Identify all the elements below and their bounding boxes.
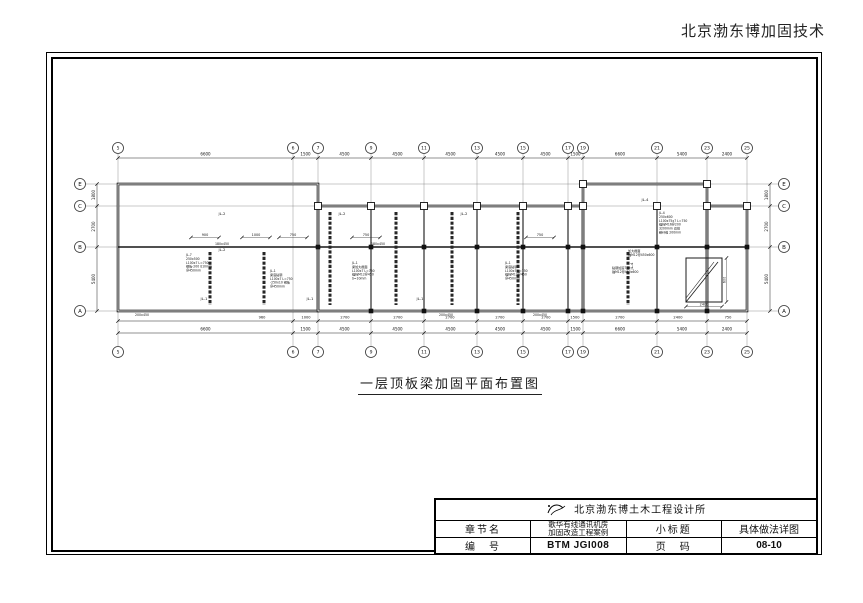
inner-dim-value: 1000 [252,233,261,237]
axis-bubble-top-label: 15 [520,146,526,152]
column-filled [745,245,750,250]
page-label: 页 码 [626,537,722,554]
dim-value-top: 4500 [392,152,403,157]
dim-value-bottom: 4500 [540,327,551,332]
column-hollow [474,203,481,210]
reinforcement-note: 加大截面锚M12@450x600 [628,248,654,257]
dim-value-room: 960 [259,316,267,320]
axis-bubble-left-label: E [78,182,82,188]
dim-value-top: 1500 [570,152,581,157]
axis-bubble-top-label: 13 [474,146,480,152]
column-hollow [580,181,587,188]
drawing-caption-text: 一层顶板梁加固平面布置图 [358,377,542,395]
institute-name: 北京渤东博土木工程设计所 [574,505,706,516]
beam-label: JL-2 [218,211,227,216]
reinforcement-note: JL-1梁底粘钢L100x7 L=750锚栓M12@450@450mm [504,261,528,281]
axis-bubble-top-label: 23 [704,146,710,152]
axis-bubble-right-label: E [782,182,786,188]
beam-label: JL-1 [306,296,315,301]
beam-label: JL-1 [416,296,425,301]
column-filled [475,309,480,314]
beam-size-callout: 180x450 [215,242,229,246]
column-hollow [565,203,572,210]
column-hollow [704,181,711,188]
dim-value-room: 750 [725,316,733,320]
dim-value-side: 5400 [91,273,96,284]
dim-value-top: 4500 [540,152,551,157]
axis-bubble-top-label: 19 [580,146,586,152]
drawing-caption: 一层顶板梁加固平面布置图 [300,373,600,393]
column-filled [521,309,526,314]
dim-value-top: 4500 [495,152,506,157]
axis-bubble-bottom-label: 7 [317,350,320,356]
dim-value-side: 2700 [764,221,769,232]
axis-bubble-left-label: A [78,309,82,315]
axis-bubble-top-label: 6 [292,146,295,152]
dim-value-top: 6600 [200,152,211,157]
inner-dim-value: 750 [363,233,369,237]
ramp-dim-width: 2400 [700,302,709,306]
column-hollow [704,203,711,210]
dim-value-side: 2700 [91,221,96,232]
axis-bubble-bottom-label: 21 [654,350,660,356]
number-label: 编 号 [435,537,531,554]
axis-bubble-bottom-label: 19 [580,350,586,356]
column-filled [581,245,586,250]
column-filled [581,309,586,314]
column-filled [422,245,427,250]
dim-value-room: 1500 [570,316,580,320]
dim-value-top: 4500 [339,152,350,157]
dim-value-top: 4500 [445,152,456,157]
column-filled [655,245,660,250]
beam-size-callout: 180x450 [371,242,385,246]
column-hollow [580,203,587,210]
column-filled [566,309,571,314]
column-filled [316,245,321,250]
project-name-cell: 歌华有线通讯机房 加固改造工程案例 [531,520,627,537]
column-filled [422,309,427,314]
dim-value-bottom: 1500 [570,327,581,332]
title-block: 北京渤东博土木工程设计所 章节名 歌华有线通讯机房 加固改造工程案例 小标题 具… [434,498,818,555]
axis-bubble-top-label: 21 [654,146,660,152]
ramp-diagonal [686,262,714,298]
axis-bubble-bottom-label: 11 [421,350,427,356]
axis-bubble-bottom-label: 17 [565,350,571,356]
reinforcement-note: 粘钢加固700锚M12@450x600 [612,265,638,274]
axis-bubble-bottom-label: 23 [704,350,710,356]
inner-dim-value: 750 [537,233,543,237]
institute-logo-icon [546,502,566,519]
beam-size-callout: 200x450 [135,313,149,317]
page-value: 08-10 [722,537,818,554]
dim-value-side: 1800 [764,189,769,200]
inner-dim-value: 900 [202,233,208,237]
column-filled [655,309,660,314]
column-hollow [520,203,527,210]
ramp-diagonal [686,262,718,302]
reinforcement-note: JL-4250x600L100x75x7 L=750锚栓M16@2003200m… [658,211,687,235]
column-filled [369,309,374,314]
dim-value-bottom: 4500 [495,327,506,332]
axis-bubble-bottom-label: 9 [370,350,373,356]
beam-size-callout: 200x450 [439,313,453,317]
number-value: BTM JGI008 [531,537,627,554]
inner-dim-value: 750 [290,233,296,237]
chapter-label: 章节名 [435,520,531,537]
dim-value-room: 2700 [495,316,505,320]
dim-value-top: 1500 [300,152,311,157]
dim-value-side: 1800 [91,189,96,200]
column-filled [475,245,480,250]
axis-bubble-bottom-label: 25 [744,350,750,356]
column-filled [521,245,526,250]
column-hollow [315,203,322,210]
column-filled [705,245,710,250]
axis-bubble-top-label: 7 [317,146,320,152]
axis-bubble-top-label: 11 [421,146,427,152]
dim-value-room: 2700 [340,316,350,320]
axis-bubble-bottom-label: 5 [117,350,120,356]
beam-label: JL-4 [641,197,650,202]
dim-value-top: 6600 [615,152,626,157]
column-hollow [744,203,751,210]
title-block-institute-cell: 北京渤东博土木工程设计所 [435,499,817,520]
dim-value-top: 2400 [722,152,733,157]
dim-value-top: 5400 [677,152,688,157]
beam-label: JL-2 [460,211,469,216]
dim-value-side: 5400 [764,273,769,284]
axis-bubble-bottom-label: 13 [474,350,480,356]
dim-value-bottom: 6600 [615,327,626,332]
dim-value-bottom: 1500 [300,327,311,332]
dim-value-bottom: 4500 [445,327,456,332]
axis-bubble-top-label: 5 [117,146,120,152]
beam-label: JL-2 [218,247,227,252]
dim-value-room: 1000 [301,316,311,320]
subtitle-value: 具体做法详图 [722,520,818,537]
axis-bubble-right-label: C [782,204,786,210]
dim-value-room: 2700 [615,316,625,320]
column-hollow [654,203,661,210]
drawing-sheet: { "header": { "brand": "北京渤东博加固技术" }, "c… [0,0,863,603]
column-filled [566,245,571,250]
dim-value-bottom: 2400 [722,327,733,332]
dim-value-bottom: 4500 [392,327,403,332]
axis-bubble-bottom-label: 15 [520,350,526,356]
axis-bubble-top-label: 25 [744,146,750,152]
subtitle-label: 小标题 [626,520,722,537]
project-name-line2: 加固改造工程案例 [531,529,626,537]
dim-value-room: 2700 [393,316,403,320]
axis-bubble-top-label: 9 [370,146,373,152]
dim-value-bottom: 5400 [677,327,688,332]
axis-bubble-left-label: B [78,245,82,251]
column-hollow [421,203,428,210]
beam-size-callout: 200x450 [533,313,547,317]
reinforcement-note: JL-7250x500L100x7 L=750钢板-200 δ10mm@450m… [185,253,212,273]
reinforcement-note: JL-1梁底粘钢L100x7 L=750-250x10 钢板@450mm [269,269,293,289]
axis-bubble-right-label: B [782,245,786,251]
dim-value-room: 2400 [673,316,683,320]
beam-label: JL-2 [338,211,347,216]
column-hollow [368,203,375,210]
dim-value-bottom: 4500 [339,327,350,332]
beam-label: JL-1 [200,296,209,301]
ramp-dim-height: 600 [722,277,726,283]
dim-value-bottom: 6600 [200,327,211,332]
column-filled [705,309,710,314]
axis-bubble-bottom-label: 6 [292,350,295,356]
axis-bubble-left-label: C [78,204,82,210]
axis-bubble-right-label: A [782,309,786,315]
